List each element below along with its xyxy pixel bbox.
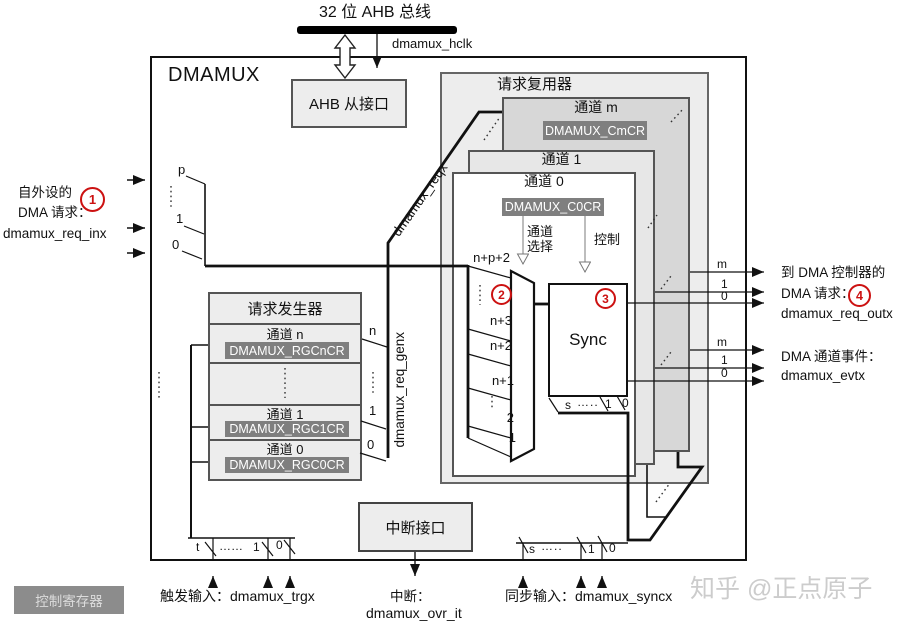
reqout-0-label: 0: [721, 290, 728, 304]
mux-input-nplusp2: n+p+2: [468, 251, 510, 266]
gen-reg-0: DMAMUX_RGC0CR: [225, 457, 349, 473]
channel-0-register: DMAMUX_C0CR: [502, 198, 604, 216]
gen-out-n: n: [369, 324, 376, 339]
req-gen-bus-label: dmamux_req_genx: [392, 315, 408, 465]
ahb-slave-box: AHB 从接口: [291, 79, 407, 128]
peripheral-label-3: dmamux_req_inx: [3, 226, 107, 242]
gen-reg-n: DMAMUX_RGCnCR: [225, 342, 349, 359]
channel-0-title: 通道 0: [452, 173, 636, 189]
trigger-input-label: 触发输入：dmamux_trgx: [160, 588, 315, 604]
badge-2: 2: [491, 284, 512, 305]
sync-sel-dots: …..: [577, 396, 599, 410]
mux-input-n1: n+1: [472, 374, 514, 389]
badge-1: 1: [80, 187, 105, 212]
evt-0-label: 0: [721, 367, 728, 381]
trig-tick-1: 1: [253, 541, 260, 555]
sync-sel-s: s: [565, 399, 571, 413]
trig-tick-0: 0: [276, 539, 283, 553]
badge-3: 3: [595, 288, 616, 309]
to-dma-line2: DMA 请求：: [781, 286, 855, 302]
sync-label: Sync: [569, 330, 607, 350]
control-register-legend: 控制寄存器: [14, 586, 124, 614]
request-generator-box: 请求发生器 通道 n DMAMUX_RGCnCR 通道 1 DMAMUX_RGC…: [208, 292, 362, 481]
sync-sel-1: 1: [605, 398, 612, 412]
gen-channel-n-label: 通道 n: [210, 326, 360, 341]
gen-channel-1-label: 通道 1: [210, 406, 360, 420]
sync-input-label: 同步输入：dmamux_syncx: [505, 588, 672, 604]
trig-tick-t: t: [196, 541, 199, 555]
sync-tick-s: s: [529, 543, 535, 557]
input-0-label: 0: [172, 238, 179, 253]
dmamux-block-diagram: AHB 从接口 中断接口 请求发生器 通道 n DMAMUX_RGCnCR 通道…: [0, 0, 905, 630]
interrupt-interface-label: 中断接口: [385, 517, 445, 538]
peripheral-label-1: 自外设的: [18, 185, 72, 201]
to-dma-line3: dmamux_req_outx: [781, 306, 893, 322]
gen-out-1: 1: [369, 404, 376, 419]
mux-input-n2: n+2: [470, 339, 512, 354]
channel-m-title: 通道 m: [502, 99, 690, 115]
watermark: 知乎 @正点原子: [690, 575, 872, 604]
interrupt-label-2: dmamux_ovr_it: [366, 605, 462, 621]
request-generator-title: 请求发生器: [210, 294, 360, 323]
mux-input-n3: n+3: [470, 314, 512, 329]
dmamux-title: DMAMUX: [168, 64, 260, 87]
input-1-label: 1: [176, 212, 183, 227]
sync-block: Sync: [548, 283, 628, 397]
gen-out-0: 0: [367, 438, 374, 453]
ahb-slave-label: AHB 从接口: [309, 93, 389, 114]
hclk-label: dmamux_hclk: [392, 37, 472, 52]
ahb-bus-title: 32 位 AHB 总线: [292, 3, 458, 23]
input-p-label: p: [178, 163, 185, 178]
mux-input-1: 1: [474, 431, 516, 446]
interrupt-label-1: 中断：: [390, 589, 431, 605]
request-multiplexer-title: 请求复用器: [497, 76, 572, 93]
mux-input-2: 2: [472, 411, 514, 426]
sync-tick-0: 0: [609, 542, 616, 556]
to-dma-line1: 到 DMA 控制器的: [781, 265, 885, 281]
sync-tick-dots: …..: [541, 540, 563, 554]
evt-m-label: m: [717, 336, 727, 350]
gen-reg-1: DMAMUX_RGC1CR: [225, 421, 349, 437]
channel-1-title: 通道 1: [468, 151, 655, 167]
peripheral-label-2: DMA 请求：: [18, 205, 92, 221]
trig-tick-dots: ……: [219, 540, 243, 554]
gen-channel-0-label: 通道 0: [210, 441, 360, 455]
sync-tick-1: 1: [588, 543, 595, 557]
badge-4: 4: [848, 284, 871, 307]
channel-m-register: DMAMUX_CmCR: [543, 121, 647, 140]
dma-event-line1: DMA 通道事件：: [781, 349, 882, 365]
reqout-m-label: m: [717, 258, 727, 272]
interrupt-interface-box: 中断接口: [358, 502, 473, 552]
sync-sel-0: 0: [622, 397, 629, 411]
ahb-bus-bar: [297, 26, 457, 34]
channel-select-label: 通道 选择: [527, 224, 553, 254]
dma-event-line2: dmamux_evtx: [781, 368, 865, 384]
control-label: 控制: [594, 233, 620, 248]
